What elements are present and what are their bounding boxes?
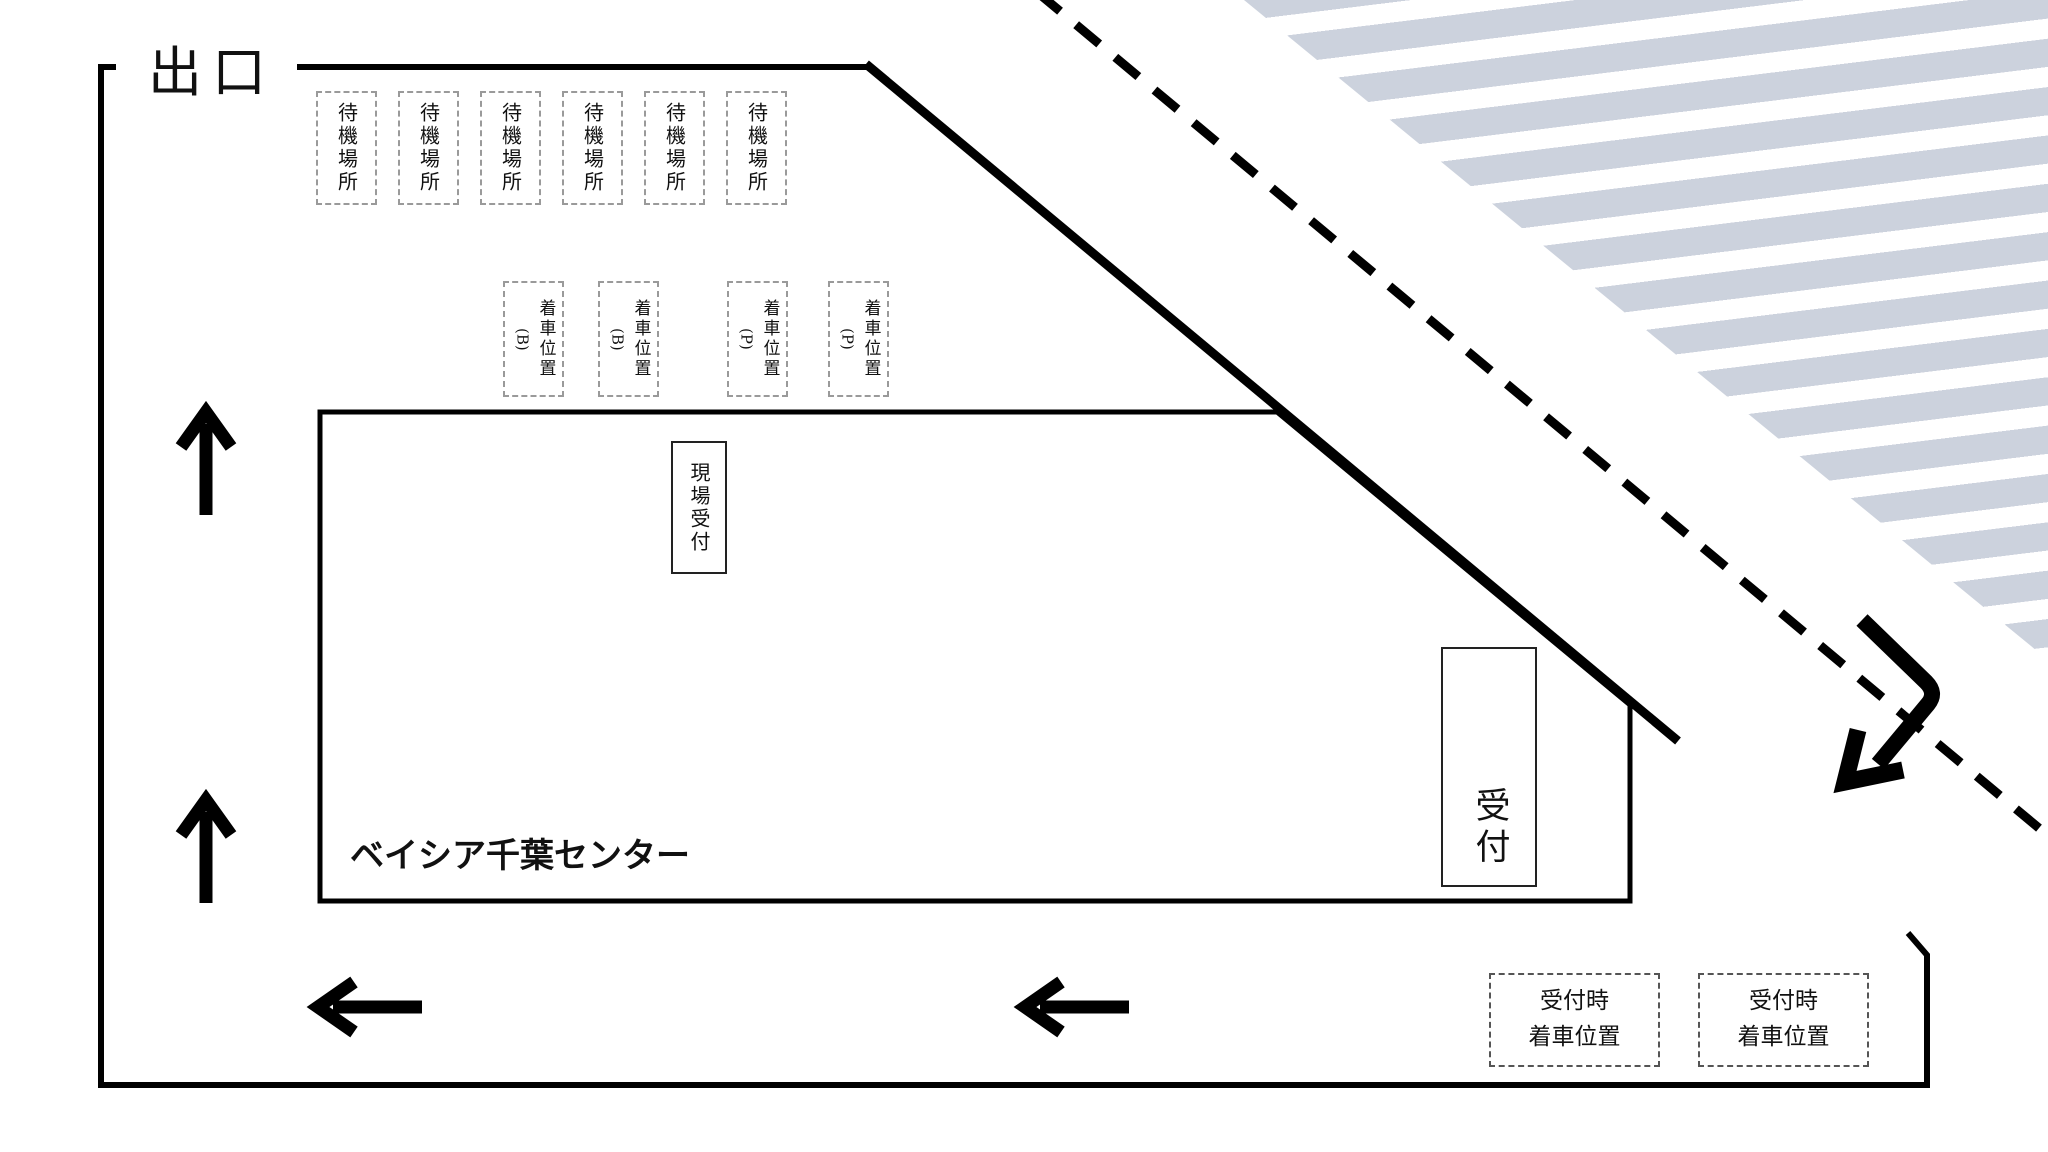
arrival-position-label: 着車位置 [761, 299, 778, 379]
building-name-label: ベイシア千葉センター [350, 828, 690, 877]
waiting-spot-label: 待機場所 [665, 102, 685, 194]
arrival-position-box: (P) 着車位置 [727, 281, 788, 397]
waiting-spot-label: 待機場所 [419, 102, 439, 194]
waiting-spot-box: 待機場所 [398, 91, 459, 205]
waiting-spot-label: 待機場所 [337, 102, 357, 194]
arrival-position-label: 着車位置 [537, 299, 554, 379]
reception-arrival-line1: 受付時 [1540, 984, 1609, 1020]
u-turn-arrow-icon [1845, 620, 1932, 782]
reception-arrival-line1: 受付時 [1749, 984, 1818, 1020]
arrival-position-box: (B) 着車位置 [503, 281, 564, 397]
waiting-spot-box: 待機場所 [562, 91, 623, 205]
arrival-position-box: (B) 着車位置 [598, 281, 659, 397]
reception-arrival-line2: 着車位置 [1738, 1020, 1830, 1056]
waiting-spot-box: 待機場所 [316, 91, 377, 205]
waiting-spot-box: 待機場所 [644, 91, 705, 205]
arrival-position-code: (B) [609, 328, 627, 351]
arrival-position-code: (P) [738, 328, 756, 350]
arrival-position-code: (P) [839, 328, 857, 350]
reception-arrival-box: 受付時 着車位置 [1698, 973, 1869, 1067]
field-reception-box: 現場受付 [671, 441, 727, 574]
left-arrow-icon [318, 982, 422, 1032]
arrival-position-label: 着車位置 [862, 299, 879, 379]
waiting-spot-box: 待機場所 [726, 91, 787, 205]
waiting-spot-label: 待機場所 [747, 102, 767, 194]
up-arrow-icon [181, 412, 231, 515]
reception-label: 受付 [1472, 787, 1507, 869]
reception-arrival-line2: 着車位置 [1529, 1020, 1621, 1056]
reception-box: 受付 [1441, 647, 1537, 887]
up-arrow-icon [181, 800, 231, 903]
waiting-spot-label: 待機場所 [501, 102, 521, 194]
field-reception-label: 現場受付 [689, 462, 709, 554]
waiting-spot-box: 待機場所 [480, 91, 541, 205]
arrival-position-label: 着車位置 [632, 299, 649, 379]
parking-guide-map: 出口 待機場所 待機場所 待機場所 待機場所 待機場所 待機場所 (B) 着車位… [0, 0, 2048, 1152]
waiting-spot-label: 待機場所 [583, 102, 603, 194]
left-arrow-icon [1025, 982, 1129, 1032]
arrival-position-box: (P) 着車位置 [828, 281, 889, 397]
exit-label: 出口 [148, 28, 276, 107]
reception-arrival-box: 受付時 着車位置 [1489, 973, 1660, 1067]
arrival-position-code: (B) [514, 328, 532, 351]
